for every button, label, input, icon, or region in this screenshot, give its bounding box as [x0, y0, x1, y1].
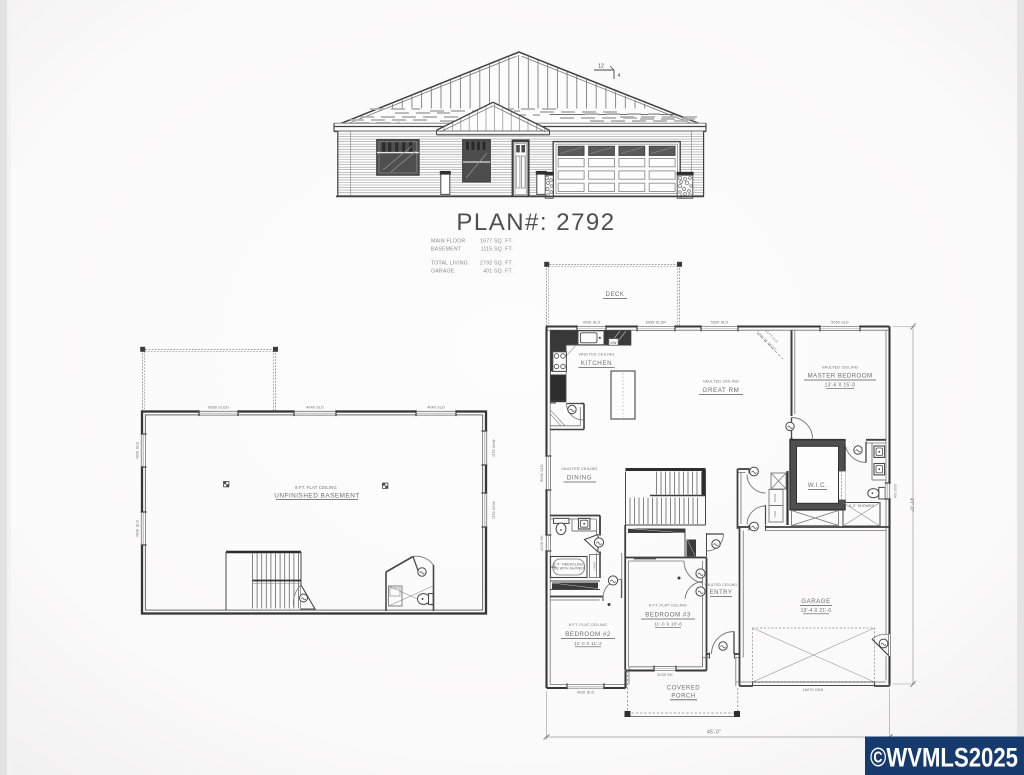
svg-text:UNFINISHED BASEMENT: UNFINISHED BASEMENT: [274, 493, 360, 500]
svg-text:4040 SLD: 4040 SLD: [492, 439, 496, 457]
svg-text:8 FT. FLAT CEILING: 8 FT. FLAT CEILING: [649, 604, 687, 608]
svg-text:BASE: BASE: [773, 493, 777, 501]
svg-text:VAULTED CEILING: VAULTED CEILING: [705, 583, 738, 587]
svg-text:8 FT. FLAT CEILING: 8 FT. FLAT CEILING: [295, 485, 337, 490]
svg-text:4020 SH: 4020 SH: [540, 535, 544, 551]
svg-text:BEDROOM #2: BEDROOM #2: [565, 631, 611, 638]
svg-text:4030 SLD: 4030 SLD: [577, 691, 595, 695]
svg-text:BASEMENT: BASEMENT: [431, 247, 462, 253]
svg-text:VAULTED CEILING: VAULTED CEILING: [822, 366, 858, 370]
svg-text:©WVMLS2025: ©WVMLS2025: [870, 743, 1018, 773]
svg-text:4030 SLD: 4030 SLD: [136, 442, 140, 460]
svg-text:45'-0": 45'-0": [707, 730, 721, 736]
svg-text:GREAT RM: GREAT RM: [703, 387, 740, 394]
svg-text:47'-0": 47'-0": [908, 498, 914, 512]
svg-text:DINING: DINING: [567, 475, 592, 482]
svg-text:4030 SLD: 4030 SLD: [136, 520, 140, 538]
svg-text:12: 12: [598, 64, 604, 70]
svg-text:4040 SLD: 4040 SLD: [492, 501, 496, 519]
svg-text:5'-0" SHOWER: 5'-0" SHOWER: [849, 504, 875, 508]
svg-text:19'-4 X 21'-0: 19'-4 X 21'-0: [801, 608, 832, 614]
svg-text:5050 SLD: 5050 SLD: [711, 321, 729, 325]
svg-text:MAIN FLOOR: MAIN FLOOR: [431, 239, 465, 245]
svg-text:ENTRY: ENTRY: [710, 590, 733, 596]
svg-text:11'-0 X 11'-2: 11'-0 X 11'-2: [574, 641, 602, 646]
svg-text:16070 OHD: 16070 OHD: [803, 688, 824, 692]
svg-text:4030 SLD: 4030 SLD: [583, 321, 601, 325]
svg-text:3030 SH: 3030 SH: [657, 673, 673, 677]
svg-text:4040 SLD: 4040 SLD: [427, 406, 445, 410]
svg-text:PORCH: PORCH: [671, 694, 695, 700]
svg-text:5050 SLD: 5050 SLD: [831, 321, 849, 325]
svg-text:4040 SLD: 4040 SLD: [306, 406, 324, 410]
svg-text:DW: DW: [610, 341, 617, 345]
svg-text:1677 SQ. FT.: 1677 SQ. FT.: [480, 239, 513, 245]
svg-text:LINEN: LINEN: [593, 561, 597, 570]
svg-text:6068 SLGD: 6068 SLGD: [208, 406, 229, 410]
svg-text:11'-0 X 10'-6: 11'-0 X 10'-6: [654, 622, 682, 627]
svg-text:401 SQ. FT.: 401 SQ. FT.: [483, 269, 513, 275]
svg-text:TUB WITH SHOWER: TUB WITH SHOWER: [552, 567, 586, 571]
svg-text:VAULTED CEILING: VAULTED CEILING: [703, 380, 739, 384]
svg-text:4: 4: [618, 73, 621, 79]
svg-text:KITCHEN: KITCHEN: [581, 360, 612, 367]
svg-text:PLAN#: 2792: PLAN#: 2792: [456, 209, 615, 236]
svg-text:8 FT. FLAT CEILING: 8 FT. FLAT CEILING: [569, 623, 607, 627]
svg-text:COVERED: COVERED: [667, 686, 700, 692]
svg-text:5030 SLD: 5030 SLD: [540, 464, 544, 482]
svg-text:BEDROOM #3: BEDROOM #3: [645, 612, 691, 619]
svg-text:DECK: DECK: [606, 292, 625, 298]
svg-text:VAULTED CEILING: VAULTED CEILING: [561, 467, 597, 471]
svg-text:GARAGE: GARAGE: [431, 269, 455, 275]
svg-text:OHD: OHD: [773, 511, 777, 518]
svg-text:MASTER BEDROOM: MASTER BEDROOM: [807, 373, 872, 380]
svg-text:2792 SQ. FT.: 2792 SQ. FT.: [480, 261, 513, 267]
svg-text:1115 SQ. FT.: 1115 SQ. FT.: [481, 247, 513, 253]
svg-text:3030 SH: 3030 SH: [893, 484, 897, 499]
svg-text:GARAGE: GARAGE: [801, 598, 830, 605]
svg-text:13'-6 X 15'-0: 13'-6 X 15'-0: [825, 383, 856, 389]
svg-text:W.I.C.: W.I.C.: [808, 483, 827, 489]
svg-text:TOTAL LIVING: TOTAL LIVING: [431, 261, 468, 267]
svg-text:VAULTED CEILING: VAULTED CEILING: [578, 353, 614, 357]
svg-text:6068 SLDR: 6068 SLDR: [646, 321, 667, 325]
